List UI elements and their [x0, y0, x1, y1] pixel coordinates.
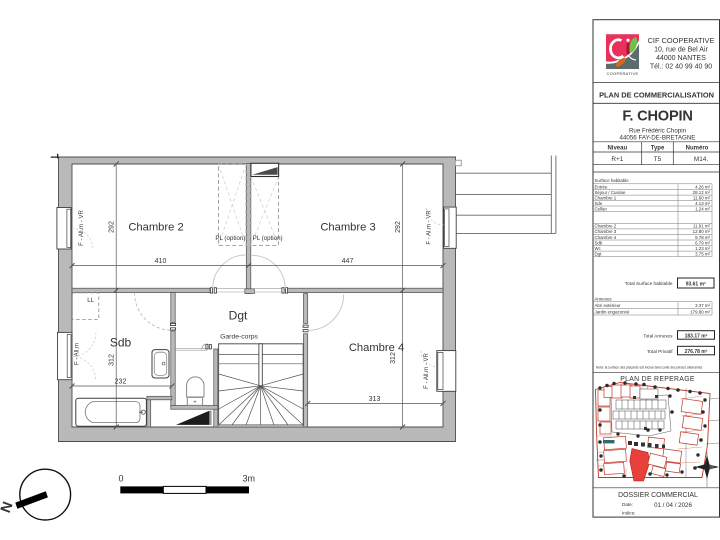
- svg-text:Sdb: Sdb: [595, 240, 603, 245]
- svg-text:Annexes: Annexes: [595, 297, 613, 302]
- svg-text:Total Privatif: Total Privatif: [647, 349, 673, 354]
- svg-text:Dgt: Dgt: [595, 252, 603, 257]
- svg-text:COOPÉRATIVE: COOPÉRATIVE: [607, 71, 639, 76]
- svg-text:11.91 m²: 11.91 m²: [693, 224, 711, 229]
- svg-text:PL (option): PL (option): [215, 235, 245, 242]
- svg-text:4.13 m²: 4.13 m²: [695, 201, 710, 206]
- svg-text:Chambre 2: Chambre 2: [128, 222, 183, 234]
- svg-text:12.80 m²: 12.80 m²: [693, 229, 711, 234]
- svg-text:01 / 04 / 2026: 01 / 04 / 2026: [654, 502, 692, 509]
- svg-text:292: 292: [108, 221, 115, 233]
- svg-text:1.24 m²: 1.24 m²: [695, 206, 710, 211]
- svg-text:232: 232: [115, 378, 127, 385]
- svg-text:93.61 m²: 93.61 m²: [686, 281, 706, 287]
- svg-text:Total Annexes: Total Annexes: [643, 333, 673, 338]
- svg-text:F - Al.m - VR: F - Al.m - VR: [427, 210, 433, 245]
- svg-text:4.26 m²: 4.26 m²: [695, 184, 710, 189]
- svg-text:Date:: Date:: [622, 502, 633, 507]
- svg-text:276.78 m²: 276.78 m²: [685, 349, 708, 355]
- svg-text:0: 0: [119, 474, 124, 484]
- svg-text:Chambre 4: Chambre 4: [595, 235, 617, 240]
- svg-text:M14.: M14.: [694, 156, 708, 163]
- svg-text:N: N: [0, 499, 15, 514]
- svg-text:Chambre 2: Chambre 2: [595, 224, 617, 229]
- svg-text:313: 313: [369, 396, 381, 403]
- svg-text:F. CHOPIN: F. CHOPIN: [622, 108, 692, 124]
- svg-text:Séjour / Cuisine: Séjour / Cuisine: [595, 190, 627, 195]
- svg-text:447: 447: [342, 258, 354, 265]
- svg-text:410: 410: [155, 258, 167, 265]
- svg-text:Chambre 1: Chambre 1: [595, 195, 617, 200]
- svg-text:T5: T5: [654, 156, 662, 163]
- svg-text:6.79 m²: 6.79 m²: [695, 240, 710, 245]
- svg-text:11.60 m²: 11.60 m²: [693, 195, 711, 200]
- svg-text:183.17 m²: 183.17 m²: [685, 333, 708, 339]
- svg-text:Cellier: Cellier: [595, 206, 608, 211]
- svg-text:Wc: Wc: [595, 246, 602, 251]
- svg-text:Chambre 3: Chambre 3: [320, 222, 375, 234]
- svg-text:PL (option): PL (option): [253, 235, 283, 242]
- svg-text:Indice:: Indice:: [622, 511, 636, 516]
- svg-text:44000 NANTES: 44000 NANTES: [656, 55, 706, 62]
- svg-text:Entrée: Entrée: [595, 184, 608, 189]
- svg-text:F - All.m - VR: F - All.m - VR: [79, 210, 85, 246]
- svg-text:DOSSIER COMMERCIAL: DOSSIER COMMERCIAL: [618, 492, 698, 499]
- svg-text:PLAN DE REPERAGE: PLAN DE REPERAGE: [620, 376, 695, 383]
- svg-text:3.75 m²: 3.75 m²: [695, 252, 710, 257]
- svg-text:Garde-corps: Garde-corps: [220, 334, 258, 341]
- svg-text:312: 312: [108, 354, 115, 366]
- svg-text:CIF COOPERATIVE: CIF COOPERATIVE: [648, 36, 715, 45]
- svg-text:Sdb: Sdb: [110, 336, 132, 350]
- svg-text:Niveau: Niveau: [607, 146, 627, 152]
- svg-text:1.23 m²: 1.23 m²: [695, 246, 710, 251]
- svg-text:F - All.m: F - All.m: [75, 343, 81, 365]
- svg-text:Numéro: Numéro: [686, 146, 709, 152]
- svg-text:F - All.m - VR: F - All.m - VR: [424, 353, 430, 389]
- svg-text:9.78 m²: 9.78 m²: [695, 235, 710, 240]
- svg-text:Type: Type: [651, 146, 665, 152]
- svg-text:Total Surface habitable: Total Surface habitable: [625, 281, 673, 286]
- svg-text:Abri extérieur: Abri extérieur: [595, 303, 622, 308]
- svg-text:Chambre 4: Chambre 4: [349, 342, 404, 354]
- svg-text:Tél.: 02 40 99 40 90: Tél.: 02 40 99 40 90: [650, 64, 712, 71]
- svg-text:Nota: la surface des placards: Nota: la surface des placards est inclue…: [596, 365, 703, 369]
- svg-text:292: 292: [395, 221, 402, 233]
- svg-text:Sde: Sde: [595, 201, 603, 206]
- svg-text:R+1: R+1: [611, 156, 623, 163]
- svg-text:Dgt: Dgt: [229, 309, 248, 323]
- svg-text:PLAN DE COMMERCIALISATION: PLAN DE COMMERCIALISATION: [599, 91, 714, 100]
- svg-text:28.12 m²: 28.12 m²: [693, 190, 711, 195]
- svg-text:Jardin engazonné: Jardin engazonné: [595, 310, 630, 315]
- svg-text:3.37 m²: 3.37 m²: [695, 303, 710, 308]
- svg-text:Chambre 3: Chambre 3: [595, 229, 617, 234]
- svg-text:44056 FAY-DE-BRETAGNE: 44056 FAY-DE-BRETAGNE: [620, 134, 696, 141]
- svg-text:3m: 3m: [243, 474, 256, 484]
- svg-text:Surface habitable: Surface habitable: [595, 178, 630, 183]
- svg-text:10, rue de Bel Air: 10, rue de Bel Air: [654, 47, 708, 54]
- svg-text:179.80 m²: 179.80 m²: [690, 310, 710, 315]
- svg-text:LL: LL: [87, 298, 94, 304]
